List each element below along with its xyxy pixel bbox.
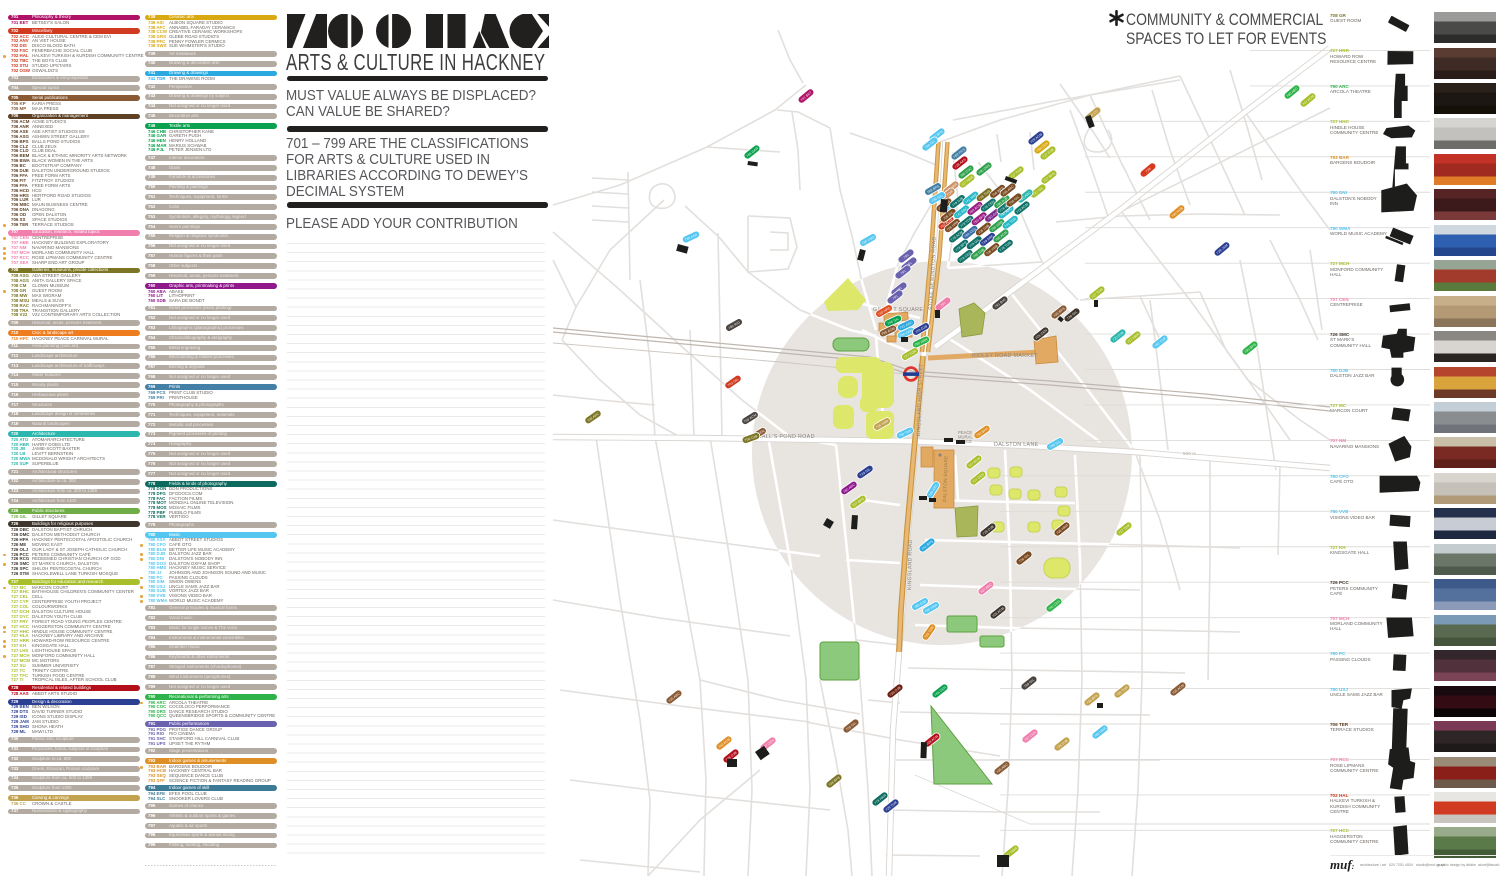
- svg-text:500 m: 500 m: [1183, 451, 1196, 456]
- svg-text:DALSTON LANE: DALSTON LANE: [994, 442, 1039, 448]
- svg-text:BALL'S POND ROAD: BALL'S POND ROAD: [758, 434, 815, 440]
- svg-text:RIDLEY ROAD MARKET: RIDLEY ROAD MARKET: [972, 353, 1038, 359]
- svg-text:KINGSLAND ROAD: KINGSLAND ROAD: [907, 539, 914, 590]
